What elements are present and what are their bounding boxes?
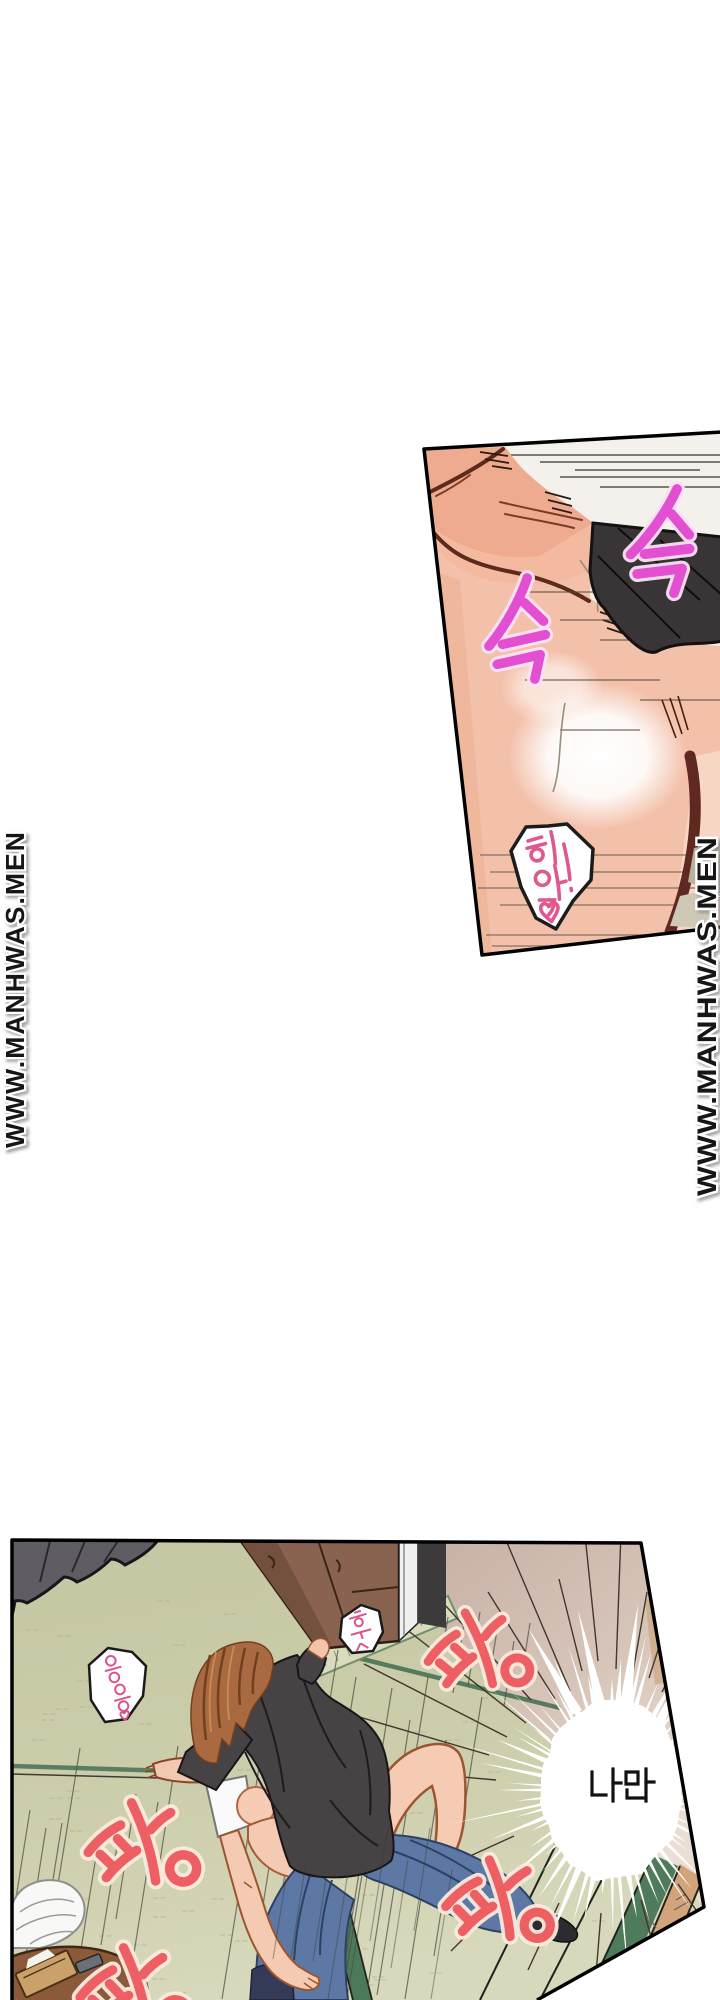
svg-text:WWW.MANHWAS.MEN: WWW.MANHWAS.MEN — [0, 830, 30, 1148]
svg-text:WWW.MANHWAS.MEN: WWW.MANHWAS.MEN — [692, 836, 720, 1196]
